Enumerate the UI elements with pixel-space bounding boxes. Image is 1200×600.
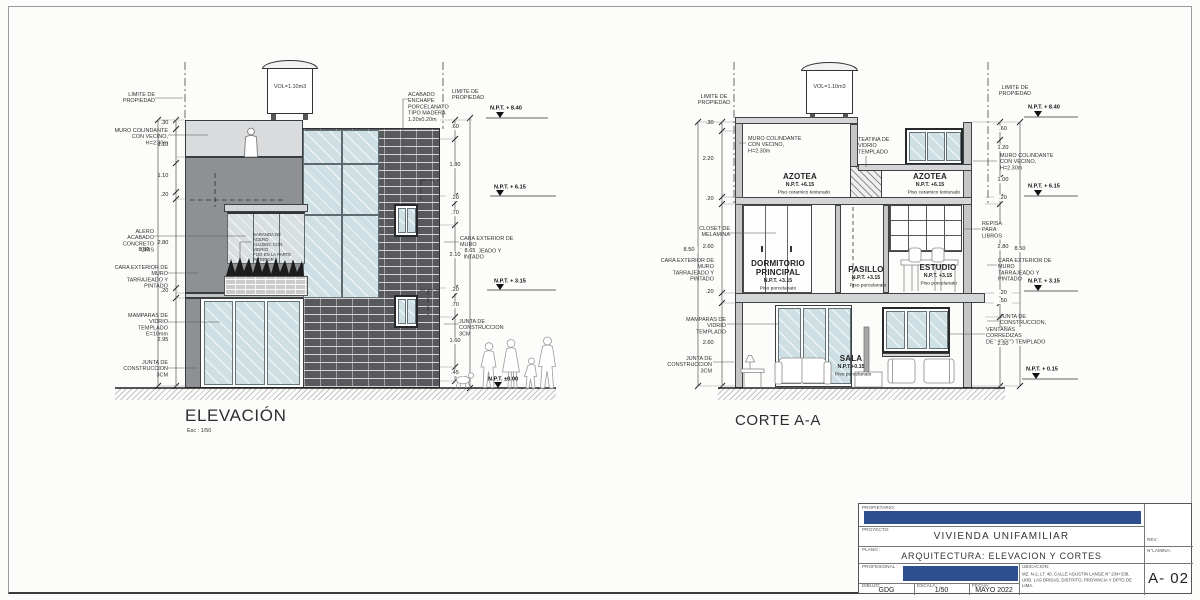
dim: 1.20	[994, 145, 1012, 151]
room-npt: N.P.T. +3.15	[919, 273, 957, 279]
room-label-pasillo: PASILLO N.P.T. +3.15 Piso porcelanato	[843, 266, 889, 291]
room-floor: Piso porcelanato	[755, 286, 801, 291]
room-npt: N.P.T. +6.15	[906, 182, 954, 188]
interior-wall-dormitorio	[835, 205, 841, 293]
sheet: VOL=1.10m3	[0, 0, 1200, 600]
label-cara-exterior-left: CARA EXTERIOR DE MURO TARRAJEADO Y PINTA…	[652, 258, 714, 283]
profesional-redaction	[903, 566, 1018, 581]
tank-leg	[843, 114, 848, 118]
level-npt-840: N.P.T. + 8.40	[490, 106, 522, 112]
dim: .20	[446, 287, 464, 293]
curtain-wall-glass	[303, 130, 379, 298]
lamina-number: A- 02	[1144, 570, 1193, 587]
dim-total-right: 8.65	[461, 248, 479, 254]
planter-wall	[224, 276, 308, 296]
dibujo-value: GDG	[859, 587, 914, 594]
level-npt-615: N.P.T. + 6.15	[1028, 184, 1060, 190]
label-cara-exterior-left: CARA EXTERIOR DE MURO TARRAJEADO Y PINTA…	[106, 265, 168, 290]
level-npt-015: N.P.T. + 0.15	[1026, 367, 1058, 373]
dim: .70	[446, 210, 464, 216]
escala-value: 1/50	[914, 587, 969, 594]
water-tank	[267, 68, 313, 114]
window-upper	[394, 204, 418, 237]
profesional-label: PROFESIONAL :	[862, 565, 898, 570]
dim: .70	[446, 302, 464, 308]
room-floor: Piso ceramico texturado	[908, 190, 953, 195]
room-label-azotea-left: AZOTEA N.P.T. +6.15 Piso ceramico textur…	[768, 173, 832, 198]
dim: 1.80	[446, 162, 464, 168]
dim-total-left: 8.50	[129, 247, 150, 253]
dim: 1.10	[148, 173, 169, 179]
balcony-eave	[224, 204, 308, 212]
parapet-slab	[185, 120, 303, 157]
ground-hatch	[718, 388, 1005, 400]
lamina-label: N°LAMINA:	[1147, 549, 1171, 554]
bookshelf	[889, 205, 962, 252]
label-mamparas: MAMPARAS DE VIDRIO TEMPLADO	[679, 317, 726, 336]
label-muro-colindante-right: MURO COLINDANTE CON VECINO, H=2.30m	[1000, 153, 1055, 172]
ubicacion-value: MZ. N-2, LT. 40, CALLE AGUSTIN LANGE N° …	[1022, 572, 1140, 589]
room-name: PASILLO	[843, 266, 889, 275]
window-lower	[394, 295, 418, 328]
dim: .20	[694, 289, 713, 295]
room-npt: N.P.T. +3.15	[753, 278, 803, 284]
level-npt-000: N.P.T. ±0.00	[488, 377, 518, 383]
label-junta-right: JUNTA DE CONSTRUCCION 3CM	[459, 319, 521, 338]
room-name: AZOTEA	[768, 173, 832, 182]
dim: 1.60	[446, 338, 464, 344]
corte-title: CORTE A-A	[735, 412, 821, 429]
ground-floor-mamparas	[200, 298, 304, 388]
room-floor: Piso porcelanato	[835, 372, 867, 377]
room-name: AZOTEA	[898, 173, 962, 182]
level-npt-315: N.P.T. + 3.15	[494, 279, 526, 285]
room-floor: Piso porcelanato	[921, 281, 956, 286]
dim-total-right: 8.50	[1011, 246, 1029, 252]
elevation-title: ELEVACIÓN	[185, 406, 286, 426]
rev-label: REV:	[1147, 538, 1158, 543]
room-npt: N.P.T. +6.15	[776, 182, 824, 188]
dim: 2.80	[148, 240, 169, 246]
tank-leg	[303, 114, 308, 120]
right-exterior-wall	[963, 122, 972, 388]
room-name: ESTUDIO	[913, 264, 963, 273]
label-limite-propiedad-right: LIMITE DE PROPIEDAD	[452, 89, 488, 102]
dim: 1.10	[148, 142, 169, 148]
dim: 2.80	[994, 244, 1012, 250]
sala-window	[882, 307, 950, 353]
level-npt-840: N.P.T. + 8.40	[1028, 105, 1060, 111]
dim: .60	[994, 126, 1012, 132]
dim: .20	[148, 288, 169, 294]
propietario-redaction	[864, 511, 1141, 524]
second-floor-slab	[735, 293, 985, 303]
roof-slab-right	[858, 164, 972, 171]
plano-value: ARQUITECTURA: ELEVACION Y CORTES	[859, 551, 1144, 561]
ground-floor-wall	[185, 298, 201, 388]
title-block: PROPIETARIO: PROYECTO: VIVIENDA UNIFAMIL…	[858, 503, 1192, 594]
label-mamparas: MAMPARAS DE VIDRIO TEMPLADO E=10mm	[120, 313, 168, 338]
dim: .45	[446, 370, 464, 376]
tank-volume-label: VOL=1.10m3	[273, 84, 307, 90]
azotea-floor-slab	[735, 197, 972, 205]
dim: 1.00	[994, 177, 1012, 183]
room-floor: Piso ceramico texturado	[778, 190, 823, 195]
fecha-value: MAYO 2022	[969, 587, 1019, 594]
proyecto-value: VIVIENDA UNIFAMILIAR	[859, 531, 1144, 542]
left-exterior-wall	[735, 122, 743, 388]
propietario-label: PROPIETARIO:	[862, 506, 895, 511]
dim: .30	[694, 120, 713, 126]
room-npt: N.P.T. +3.15	[849, 275, 884, 281]
tank-leg	[810, 114, 815, 118]
room-label-estudio: ESTUDIO N.P.T. +3.15 Piso porcelanato	[913, 264, 963, 289]
dim: .60	[446, 124, 464, 130]
room-name: DORMITORIO PRINCIPAL	[745, 260, 811, 278]
label-junta-left: JUNTA DE CONSTRUCCION 3CM	[650, 356, 712, 375]
room-floor: Piso porcelanato	[850, 283, 882, 288]
dim: .50	[994, 298, 1012, 304]
upper-window	[905, 128, 963, 165]
dim: 2.60	[694, 340, 713, 346]
dim-total-left: 8.50	[680, 247, 698, 253]
window-sill	[882, 353, 950, 357]
ground-hatch	[115, 388, 556, 400]
dim: .20	[694, 196, 713, 202]
label-repisa: REPISA PARA LIBROS	[982, 221, 1016, 240]
label-closet: CLOSET DE MELAMINA	[696, 226, 730, 239]
tank-leg	[271, 114, 276, 120]
room-npt: N.P.T.+0.15	[834, 364, 869, 370]
room-label-azotea-right: AZOTEA N.P.T. +6.15 Piso ceramico textur…	[898, 173, 962, 198]
water-tank	[806, 70, 853, 114]
room-label-sala: SALA N.P.T.+0.15 Piso porcelanato	[828, 355, 874, 380]
dim: 2.50	[994, 341, 1012, 347]
label-limite-propiedad-right: LIMITE DE PROPIEDAD	[997, 85, 1033, 98]
dim: .20	[994, 195, 1012, 201]
label-muro-colindante-left: MURO COLINDANTE CON VECINO, H=2.30m	[748, 136, 806, 155]
label-baranda: BARANDA DE ACERO ALUZINC CON VIDRIO FIJO…	[253, 233, 294, 263]
tank-volume-label: VOL=1.10m3	[812, 84, 847, 90]
label-limite-propiedad-left: LIMITE DE PROPIEDAD	[118, 92, 155, 105]
elevation-scale: Esc : 1/50	[187, 428, 234, 434]
roof-slab-left	[735, 117, 858, 124]
dim: .30	[148, 120, 169, 126]
dim: .20	[994, 290, 1012, 296]
dim: .20	[148, 192, 169, 198]
label-limite-propiedad-left: LIMITE DE PROPIEDAD	[695, 94, 732, 107]
ubicacion-label: UBICACION:	[1022, 565, 1049, 570]
room-name: SALA	[828, 355, 874, 364]
dim: 2.95	[148, 337, 169, 343]
level-npt-615: N.P.T. + 6.15	[494, 185, 526, 191]
level-npt-315: N.P.T. + 3.15	[1028, 279, 1060, 285]
dim: 2.20	[694, 156, 713, 162]
label-teatina: TEATINA DE VIDRIO TEMPLADO	[858, 137, 897, 156]
dim: .20	[446, 195, 464, 201]
room-label-dormitorio: DORMITORIO PRINCIPAL N.P.T. +3.15 Piso p…	[745, 260, 811, 293]
label-junta-left: JUNTA DE CONSTRUCCION 3CM	[106, 360, 168, 379]
